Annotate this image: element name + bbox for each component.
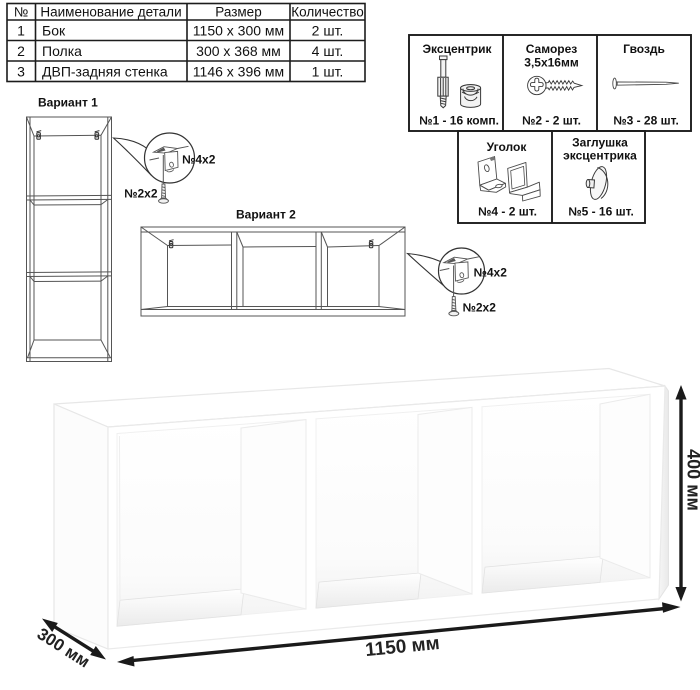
svg-text:Вариант 2: Вариант 2 bbox=[236, 208, 296, 222]
svg-text:Саморез: Саморез bbox=[526, 42, 578, 56]
svg-text:№2 - 2 шт.: №2 - 2 шт. bbox=[522, 114, 581, 128]
svg-text:эксцентрика: эксцентрика bbox=[563, 149, 637, 163]
svg-text:Заглушка: Заглушка bbox=[572, 136, 628, 150]
svg-text:Размер: Размер bbox=[215, 5, 261, 20]
svg-text:Полка: Полка bbox=[42, 43, 82, 59]
svg-text:3,5х16мм: 3,5х16мм bbox=[524, 56, 579, 70]
svg-text:4 шт.: 4 шт. bbox=[312, 43, 344, 59]
svg-text:2: 2 bbox=[17, 43, 25, 59]
svg-text:Бок: Бок bbox=[42, 23, 66, 39]
svg-text:Количество: Количество bbox=[291, 5, 364, 20]
svg-text:№4х2: №4х2 bbox=[474, 266, 508, 280]
svg-text:Эксцентрик: Эксцентрик bbox=[423, 42, 493, 56]
svg-text:№1 - 16 комп.: №1 - 16 комп. bbox=[419, 114, 499, 128]
svg-text:300 х 368 мм: 300 х 368 мм bbox=[196, 43, 281, 59]
svg-text:№2х2: №2х2 bbox=[124, 187, 158, 201]
svg-text:1: 1 bbox=[17, 23, 25, 39]
svg-text:№4 - 2 шт.: №4 - 2 шт. bbox=[478, 205, 537, 219]
svg-text:Наименование детали: Наименование детали bbox=[40, 5, 181, 20]
svg-text:Уголок: Уголок bbox=[487, 140, 528, 154]
svg-text:Гвоздь: Гвоздь bbox=[623, 42, 665, 56]
svg-text:400 мм: 400 мм bbox=[684, 449, 700, 511]
svg-text:Вариант 1: Вариант 1 bbox=[38, 96, 98, 110]
svg-text:№4х2: №4х2 bbox=[182, 153, 216, 167]
svg-text:1150 х 300 мм: 1150 х 300 мм bbox=[193, 23, 284, 39]
svg-text:2 шт.: 2 шт. bbox=[312, 23, 344, 39]
svg-text:№: № bbox=[14, 5, 28, 20]
svg-text:1146 х 396 мм: 1146 х 396 мм bbox=[193, 64, 284, 80]
svg-text:№3 - 28 шт.: №3 - 28 шт. bbox=[613, 114, 679, 128]
svg-text:3: 3 bbox=[17, 64, 25, 80]
svg-text:1 шт.: 1 шт. bbox=[312, 64, 344, 80]
svg-text:ДВП-задняя стенка: ДВП-задняя стенка bbox=[42, 64, 168, 80]
svg-text:№5 - 16 шт.: №5 - 16 шт. bbox=[568, 205, 634, 219]
svg-text:№2х2: №2х2 bbox=[463, 301, 497, 315]
